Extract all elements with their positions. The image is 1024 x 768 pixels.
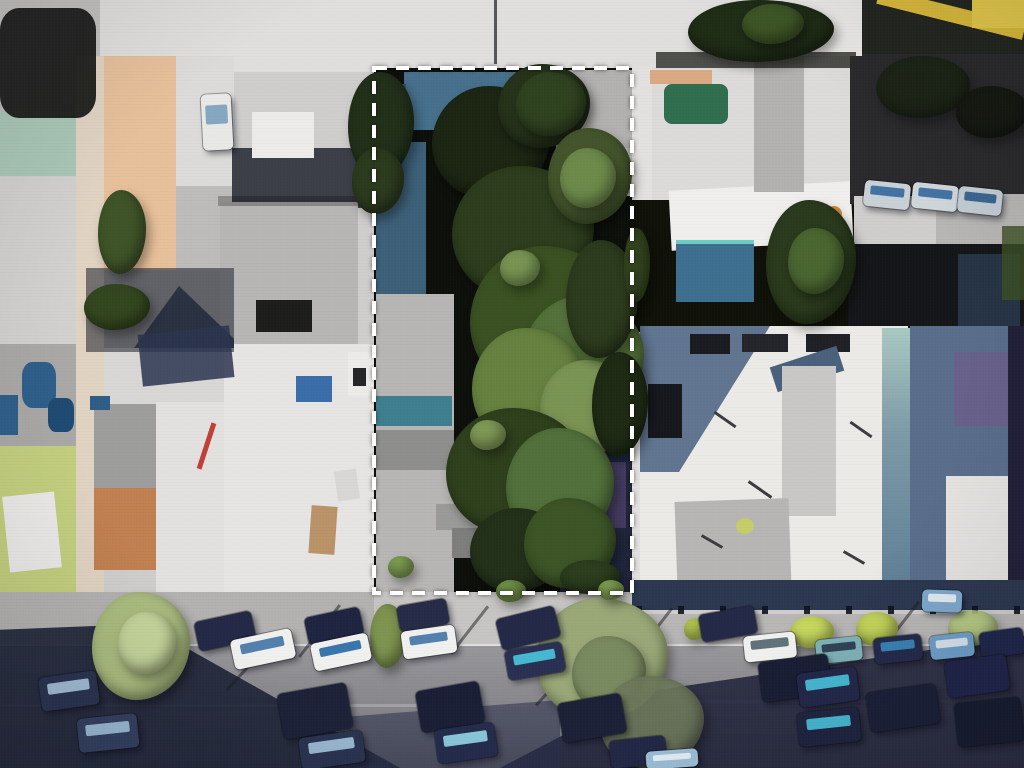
property-boundary-overlay (0, 0, 1024, 768)
property-boundary (374, 68, 632, 593)
aerial-photo (0, 0, 1024, 768)
